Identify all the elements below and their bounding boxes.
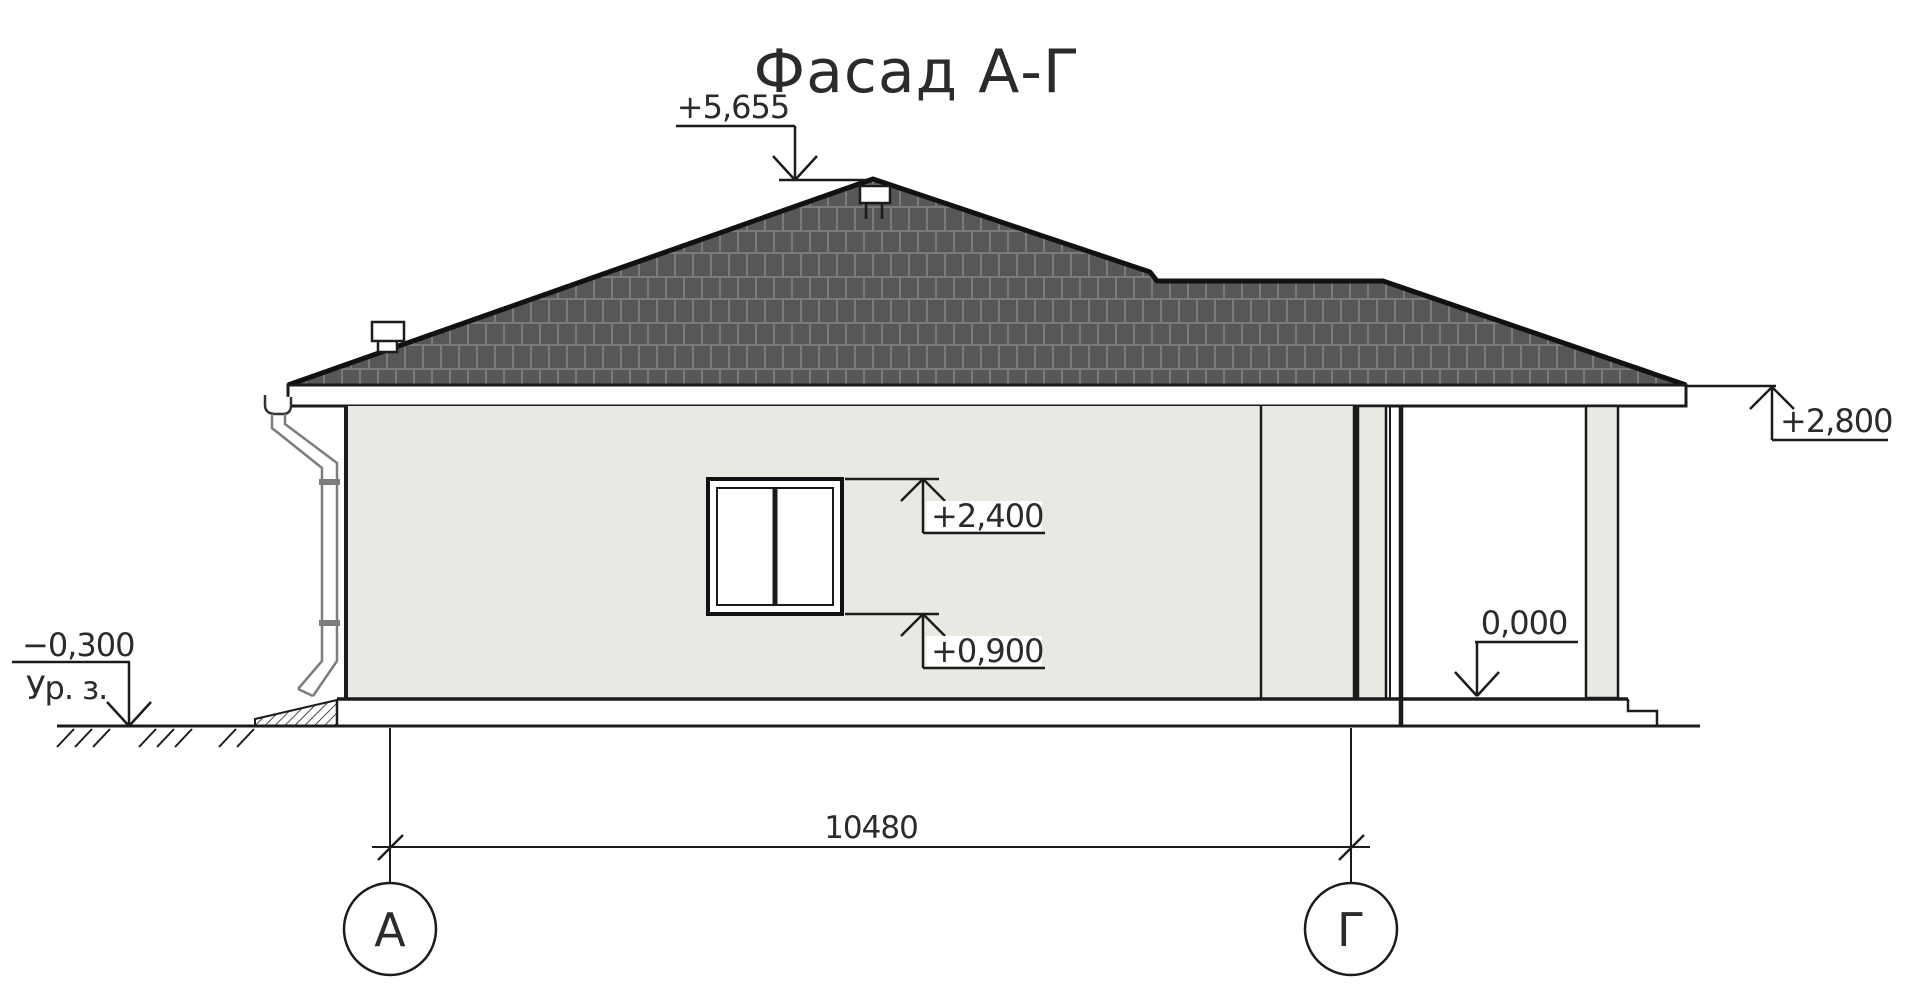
ground-level-caption: Ур. з. xyxy=(26,669,107,707)
plinth xyxy=(337,699,1403,726)
porch-column-right xyxy=(1586,406,1618,698)
axis-right: Г xyxy=(1305,728,1397,975)
downpipe xyxy=(272,414,340,696)
drawing-title: Фасад А-Г xyxy=(753,37,1080,107)
porch xyxy=(1358,406,1657,726)
axis-right-label: Г xyxy=(1337,903,1365,957)
window-sill-level-text: +0,900 xyxy=(931,632,1043,670)
facade-elevation-sheet: +5,655 +2,800 +2,400 xyxy=(0,0,1920,997)
gutter xyxy=(265,395,291,414)
axis-left: А xyxy=(344,728,436,975)
roof-surface xyxy=(288,179,1686,385)
dimension-axes-distance: 10480 xyxy=(372,810,1370,860)
wall xyxy=(344,406,1355,699)
elevation-mark-eaves: +2,800 xyxy=(1687,386,1892,440)
ground-hatch xyxy=(57,729,254,747)
porch-steps xyxy=(1628,699,1657,726)
porch-column-left xyxy=(1358,406,1386,699)
dimension-value: 10480 xyxy=(824,810,918,846)
porch-floor-level-text: 0,000 xyxy=(1481,604,1568,642)
elevation-mark-porch-floor: 0,000 xyxy=(1455,604,1578,696)
roof xyxy=(288,179,1686,385)
fascia-board xyxy=(288,385,1686,406)
ground-level-text: −0,300 xyxy=(22,626,134,664)
blind-area xyxy=(255,700,337,726)
eaves-level-text: +2,800 xyxy=(1780,402,1892,440)
window xyxy=(708,479,842,614)
facade-drawing: +5,655 +2,800 +2,400 xyxy=(0,0,1920,997)
elevation-mark-ground: −0,300 Ур. з. xyxy=(12,626,151,726)
axis-left-label: А xyxy=(374,903,406,957)
wall-surface xyxy=(344,406,1355,699)
window-head-level-text: +2,400 xyxy=(931,497,1043,535)
